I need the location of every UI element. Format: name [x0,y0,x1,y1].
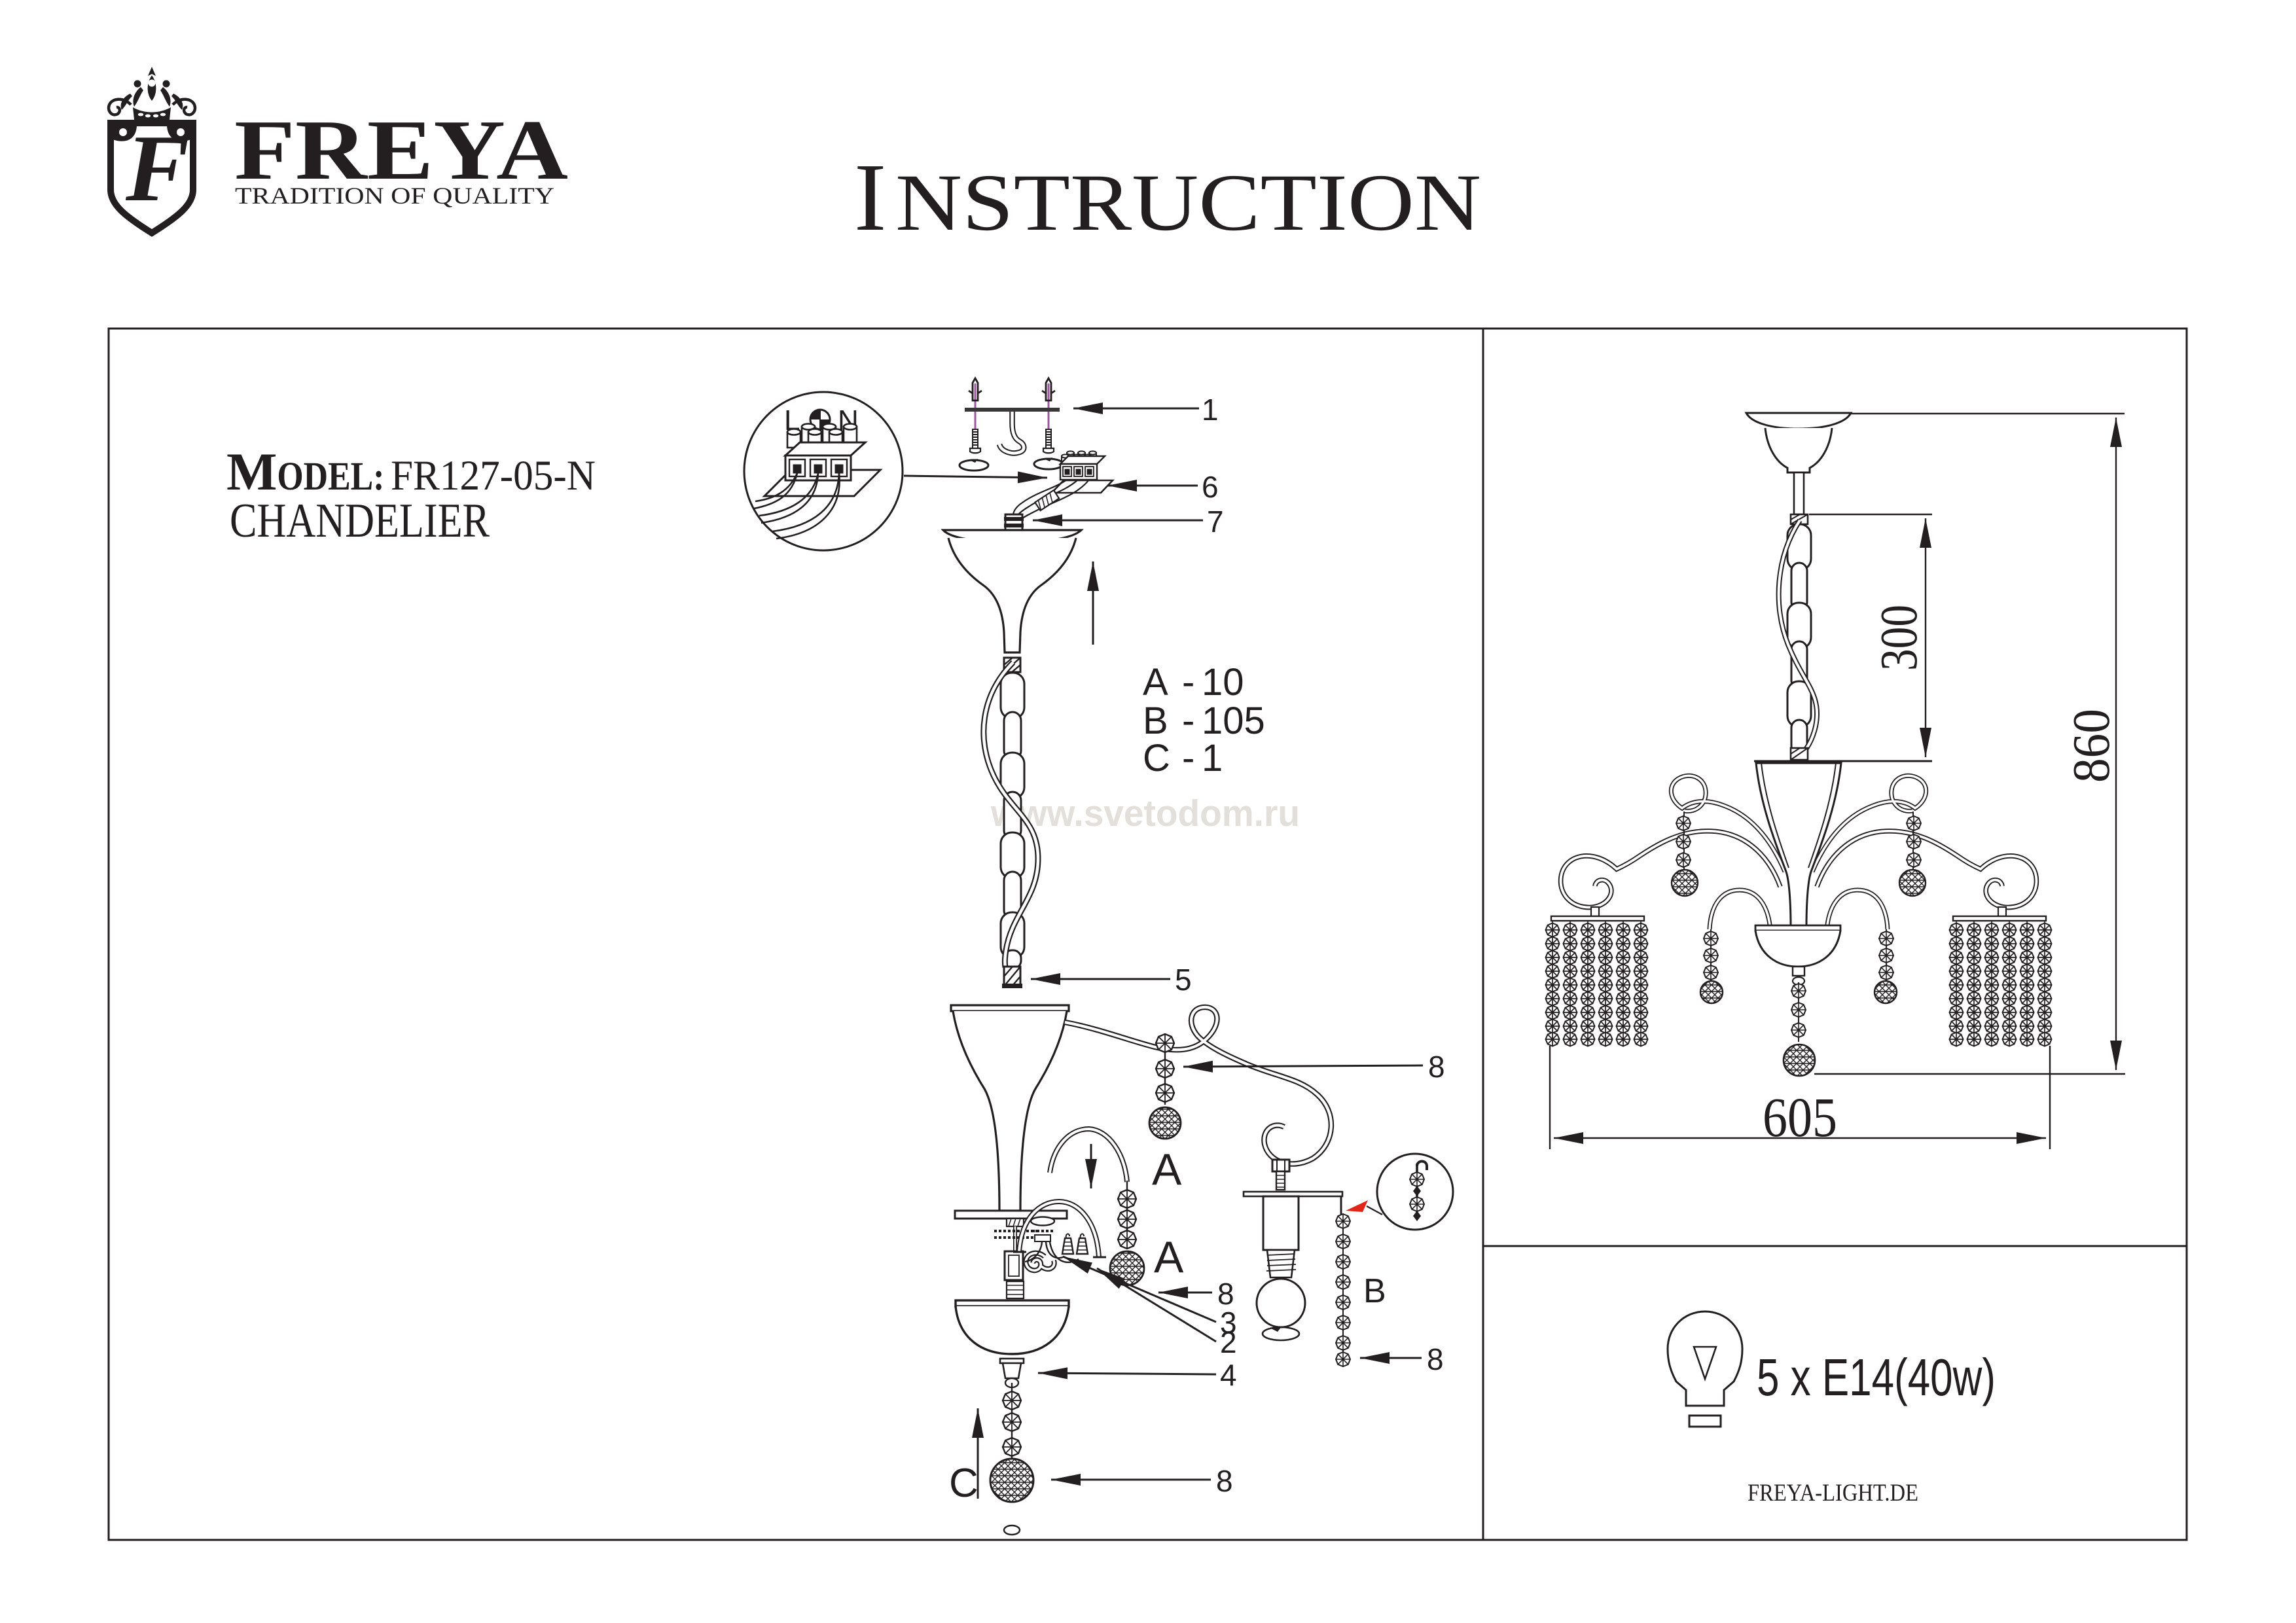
svg-text:A: A [1154,1232,1184,1282]
svg-text:I: I [854,144,886,251]
svg-text:B: B [1363,1272,1386,1310]
svg-text:860: 860 [2063,709,2121,783]
svg-text:www.svetodom.ru: www.svetodom.ru [990,793,1300,834]
svg-text:1: 1 [1202,393,1219,427]
svg-text:TRADITION OF QUALITY: TRADITION OF QUALITY [235,183,554,209]
svg-text:8: 8 [1427,1342,1444,1376]
svg-text:5 x E14(40w): 5 x E14(40w) [1757,1348,1996,1406]
svg-text:605: 605 [1763,1086,1837,1149]
svg-text:B-105: B-105 [1143,700,1265,742]
svg-text:C-1: C-1 [1143,737,1223,779]
svg-text:7: 7 [1207,505,1224,539]
svg-text:C: C [949,1461,978,1506]
svg-text:8: 8 [1216,1464,1233,1498]
svg-text:A: A [1152,1145,1182,1194]
svg-text:A-10: A-10 [1143,661,1244,704]
svg-text:300: 300 [1871,605,1928,671]
svg-text:FR127-05-N: FR127-05-N [391,452,596,499]
svg-text:8: 8 [1428,1050,1445,1084]
svg-text:F: F [125,115,189,221]
svg-text:5: 5 [1175,963,1192,997]
svg-text:FREYA-LIGHT.DE: FREYA-LIGHT.DE [1748,1480,1918,1507]
svg-text:6: 6 [1202,470,1219,504]
svg-text:2: 2 [1220,1325,1237,1359]
svg-text:CHANDELIER: CHANDELIER [230,494,490,548]
svg-text:NSTRUCTION: NSTRUCTION [895,158,1481,247]
svg-text:4: 4 [1220,1358,1237,1392]
